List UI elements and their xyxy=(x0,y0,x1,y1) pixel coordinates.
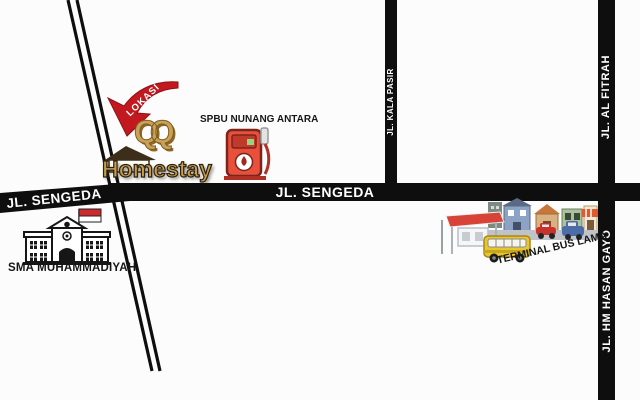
pump-base xyxy=(224,176,266,180)
fuel-pump-icon xyxy=(224,125,272,181)
bus-terminal-illustration xyxy=(438,196,598,274)
blue-house-roof xyxy=(502,198,532,206)
road-label-al-fitrah: JL. AL FITRAH xyxy=(599,37,613,157)
pump-nozzle xyxy=(261,128,268,144)
pediment-clock xyxy=(64,222,70,228)
spbu-label: SPBU NUNANG ANTARA xyxy=(200,114,308,125)
left-wing xyxy=(26,237,52,262)
road-label-kala-pasir: JL. KALA PASIR xyxy=(385,47,397,157)
road-label-sengeda-main: JL. SENGEDA xyxy=(240,183,410,201)
homestay-name: Homestay xyxy=(102,156,210,183)
homestay-logo: QQ Homestay xyxy=(102,120,210,183)
flag-white-stripe xyxy=(79,216,101,222)
pump-display-button xyxy=(247,139,254,145)
homestay-monogram: QQ xyxy=(134,114,166,151)
school-label: SMA MUHAMMADIYAH xyxy=(8,262,122,274)
flag-red-stripe xyxy=(79,209,101,216)
tower-clock-center xyxy=(66,235,69,238)
school-building-icon xyxy=(23,208,111,266)
shop-awning xyxy=(582,209,598,217)
location-map: JL. SENGEDA JL. SENGEDA JL. KALA PASIR J… xyxy=(0,0,640,400)
right-wing xyxy=(82,237,108,262)
arched-door xyxy=(59,248,75,262)
pump-hose xyxy=(265,144,269,174)
tan-house-roof xyxy=(534,204,560,214)
